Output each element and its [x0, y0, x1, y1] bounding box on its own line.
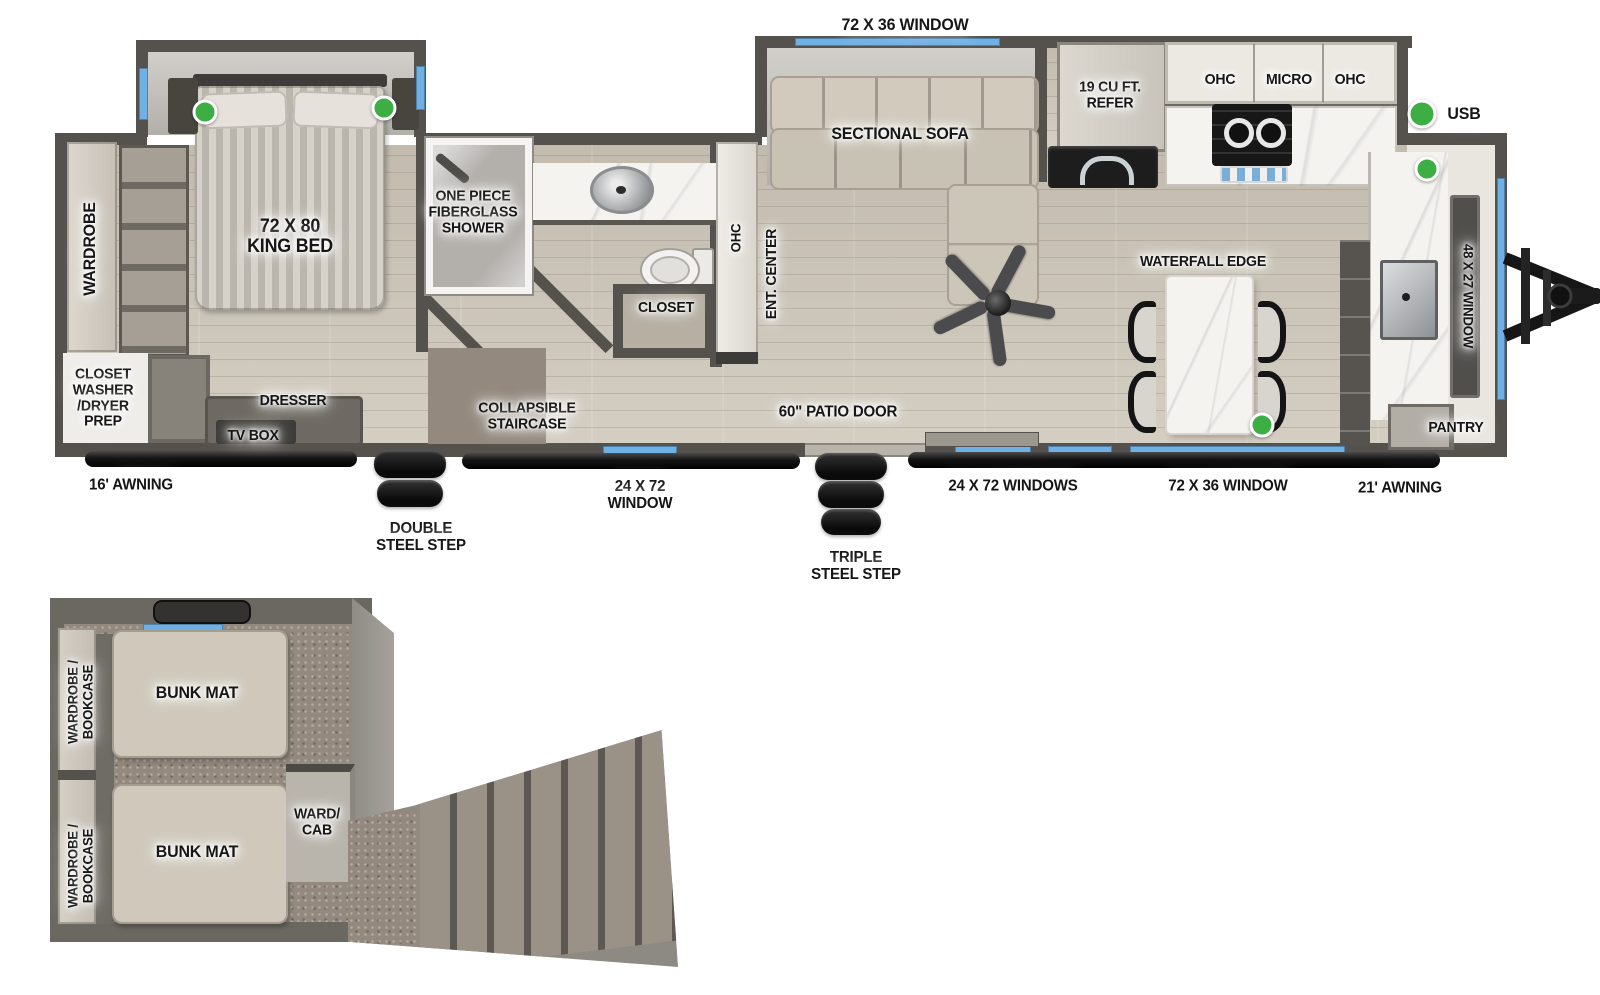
drawer-stack	[119, 145, 189, 357]
usb-indicator	[1415, 157, 1440, 182]
ent-center-label: ENT. CENTER	[764, 229, 780, 319]
wall-segment	[1396, 44, 1408, 140]
bunk-mat-label: BUNK MAT	[156, 684, 239, 702]
kitchen-faucet	[1080, 156, 1134, 185]
front-sink	[1380, 260, 1438, 340]
front-awning-label: 21' AWNING	[1358, 481, 1442, 498]
sofa-slide-wall	[755, 42, 767, 137]
oven-front	[1220, 166, 1288, 183]
closet-label: CLOSET	[638, 300, 694, 316]
kitchen-island	[1167, 277, 1252, 433]
ohc-left-label: OHC	[1205, 72, 1236, 88]
usb-indicator	[193, 100, 218, 125]
bedroom-side-cabinet	[148, 355, 210, 443]
wardrobe-label: WARDROBE	[81, 202, 99, 296]
double-step-label: DOUBLE STEEL STEP	[376, 521, 466, 555]
rear-awning-label: 16' AWNING	[89, 478, 173, 495]
ohc-right-label: OHC	[1335, 72, 1366, 88]
fan-hub	[985, 290, 1011, 316]
sectional-sofa-label: SECTIONAL SOFA	[831, 125, 968, 143]
tv-box-label: TV BOX	[227, 428, 278, 444]
double-steel-step	[377, 480, 443, 507]
sink-drain	[616, 186, 626, 194]
triple-step-label: TRIPLE STEEL STEP	[811, 550, 901, 584]
island-chair	[1128, 301, 1156, 363]
island-chair	[1128, 371, 1156, 433]
roof-hatch	[153, 600, 251, 624]
bath-window-label: 24 X 72 WINDOW	[608, 479, 673, 513]
king-bed-label: 72 X 80 KING BED	[247, 217, 333, 257]
usb-legend-icon	[1408, 100, 1437, 129]
dresser-label: DRESSER	[260, 393, 327, 409]
ohc-label: OHC	[729, 224, 744, 253]
loft-wardrobe-label: WARDROBE / BOOKCASE	[65, 824, 94, 908]
micro-label: MICRO	[1266, 72, 1312, 88]
hitch-a-frame	[1503, 240, 1600, 350]
floorplan-canvas: 72 X 36 WINDOW 72 X 80 KING BED WARDROBE…	[0, 0, 1600, 995]
front-window-label: 48 X 27 WINDOW	[1461, 244, 1476, 348]
pantry-label: PANTRY	[1428, 420, 1483, 436]
refrigerator-label: 19 CU FT. REFER	[1079, 79, 1141, 111]
bed-slide-window	[416, 66, 425, 110]
kitchen-windows-label: 24 X 72 WINDOWS	[948, 479, 1077, 496]
rear-awning-bar	[85, 451, 357, 467]
ward-cab-label: WARD/ CAB	[294, 806, 340, 838]
burner	[1224, 118, 1254, 148]
cabinet-divider	[1322, 44, 1324, 102]
usb-indicator	[1250, 413, 1275, 438]
bed-slide-wall	[136, 40, 426, 52]
waterfall-edge-label: WATERFALL EDGE	[1140, 254, 1266, 270]
cabinet-divider	[1253, 44, 1255, 102]
usb-legend-label: USB	[1447, 105, 1480, 123]
loft-wardrobe-divider	[58, 770, 96, 780]
loft-wardrobe-label: WARDROBE / BOOKCASE	[65, 660, 94, 744]
triple-steel-step	[821, 509, 881, 535]
double-steel-step	[374, 450, 446, 478]
bunk-mat-label: BUNK MAT	[156, 843, 239, 861]
loft-stairs	[420, 688, 678, 972]
island-window-label: 72 X 36 WINDOW	[1168, 479, 1287, 496]
closet-washer-dryer-label: CLOSET WASHER /DRYER PREP	[73, 367, 134, 430]
pillow	[292, 91, 379, 130]
galley-cabinets	[1340, 240, 1370, 445]
toilet-seat	[650, 256, 690, 284]
wall-segment	[1396, 133, 1507, 145]
shower-label: ONE PIECE FIBERGLASS SHOWER	[428, 188, 517, 235]
front-awning-bar	[462, 453, 800, 469]
patio-door-label: 60" PATIO DOOR	[779, 405, 897, 422]
bed-slide-window	[139, 68, 148, 120]
ent-center-base	[716, 352, 758, 364]
patio-door-slab	[925, 432, 1039, 447]
loft-staircase-wing	[348, 720, 678, 972]
sofa-slide-window	[795, 38, 1000, 46]
triple-steel-step	[818, 481, 884, 508]
sink-drain	[1402, 293, 1410, 301]
collapsible-staircase-label: COLLAPSIBLE STAIRCASE	[478, 400, 575, 432]
triple-steel-step	[815, 453, 887, 480]
island-chair	[1258, 301, 1286, 363]
burner	[1256, 118, 1286, 148]
usb-indicator	[372, 96, 397, 121]
loft-wall	[50, 922, 372, 942]
sofa-window-label: 72 X 36 WINDOW	[841, 16, 968, 34]
front-awning-bar	[908, 452, 1440, 468]
